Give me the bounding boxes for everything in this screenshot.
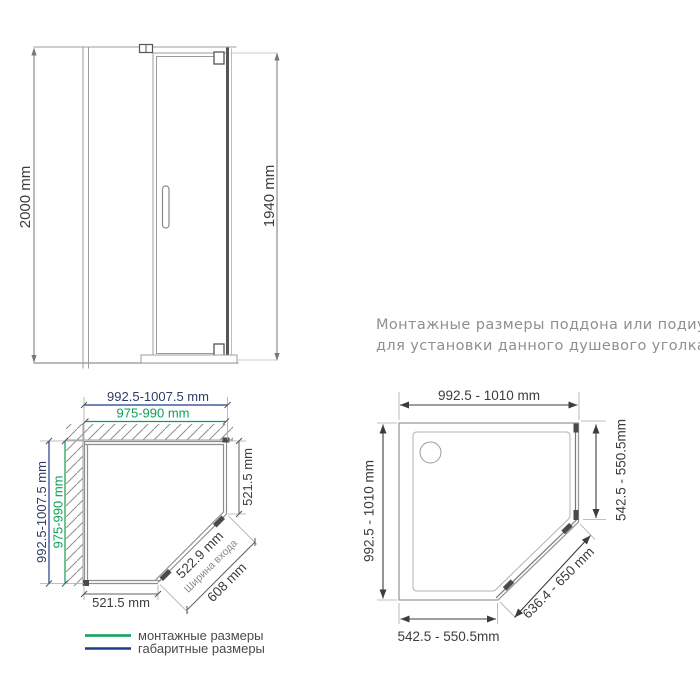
door-hinge-top — [214, 52, 224, 64]
width-mounting-label: 975-990 mm — [117, 406, 190, 421]
note-line-1: Монтажные размеры поддона или подиума — [376, 317, 700, 333]
tray-bracket-top — [574, 424, 579, 433]
tray-profile — [141, 355, 237, 363]
dim-bottom-side: 521.5 mm — [81, 585, 161, 610]
enclosure-plan-view: 992.5-1007.5 mm 975-990 mm 992.5-1007.5 … — [34, 389, 257, 614]
drain-circle — [420, 442, 441, 463]
side-panel-lines — [83, 47, 89, 368]
width-overall-label: 992.5-1007.5 mm — [107, 389, 209, 404]
dim-entry-diagonal: 522.9 mm Ширина входа 608 mm — [160, 516, 257, 614]
dim-glass-height: 1940 mm — [231, 53, 280, 362]
total-height-label: 2000 mm — [17, 166, 34, 229]
shower-enclosure-dimension-drawing: 2000 mm 1940 mm 992.5-1007.5 mm — [0, 0, 700, 700]
legend: монтажные размеры габаритные размеры — [85, 628, 265, 656]
right-side-label: 521.5 mm — [240, 448, 255, 506]
wall-hatch-top — [66, 424, 233, 440]
tray-bottom-label: 542.5 - 550.5mm — [397, 629, 499, 644]
depth-mounting-label: 975-990 mm — [51, 476, 66, 549]
glass-height-label: 1940 mm — [261, 165, 278, 228]
bottom-side-label: 521.5 mm — [92, 595, 150, 610]
tray-bracket-mid — [574, 510, 579, 520]
depth-overall-label: 992.5-1007.5 mm — [34, 461, 49, 563]
door-hinge-bottom — [214, 344, 224, 356]
tray-top-label: 992.5 - 1010 mm — [438, 388, 540, 403]
tray-left-label: 992.5 - 1010 mm — [362, 460, 377, 562]
tray-right-label: 542.5 - 550.5mm — [614, 419, 629, 521]
note-line-2: для установки данного душевого уголка — [376, 338, 700, 354]
note: Монтажные размеры поддона или подиума дл… — [376, 317, 700, 354]
dim-depth-mounting: 975-990 mm — [51, 438, 69, 587]
elevation-view: 2000 mm 1940 mm — [17, 45, 280, 369]
door-handle — [163, 186, 170, 228]
dim-right-side: 521.5 mm — [228, 438, 255, 517]
tray-plan-view: 992.5 - 1010 mm 992.5 - 1010 mm 542.5 - … — [362, 388, 629, 644]
corner-bracket-top-right — [223, 438, 230, 443]
dim-total-height: 2000 mm — [17, 48, 37, 364]
wall-hatch-left — [66, 440, 83, 586]
dim-width-mounting: 975-990 mm — [83, 406, 230, 425]
legend-label-overall: габаритные размеры — [138, 641, 265, 656]
